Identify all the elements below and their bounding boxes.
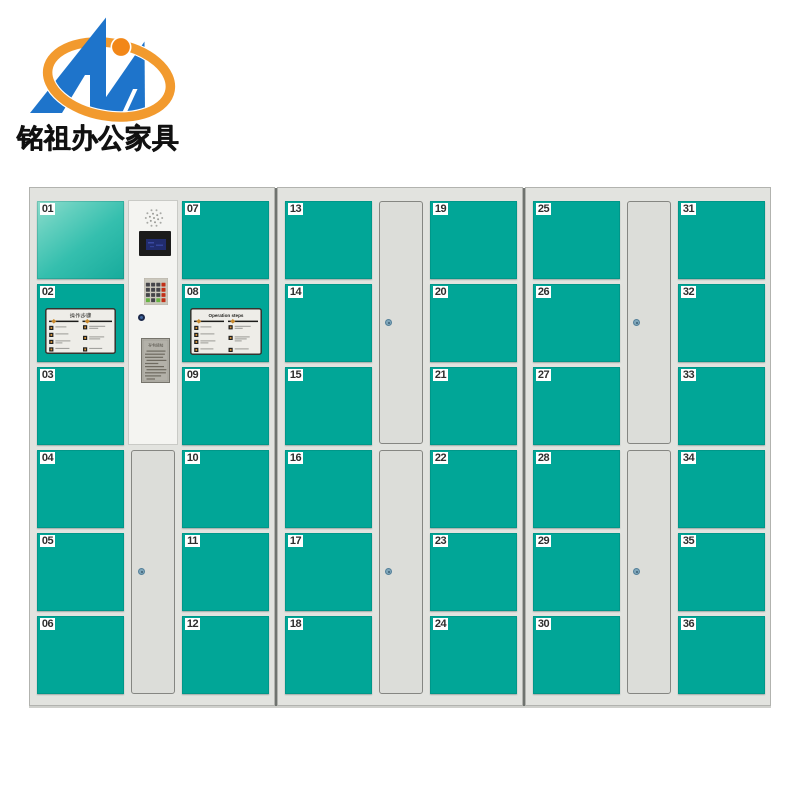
svg-text:Operation steps: Operation steps bbox=[209, 313, 244, 318]
